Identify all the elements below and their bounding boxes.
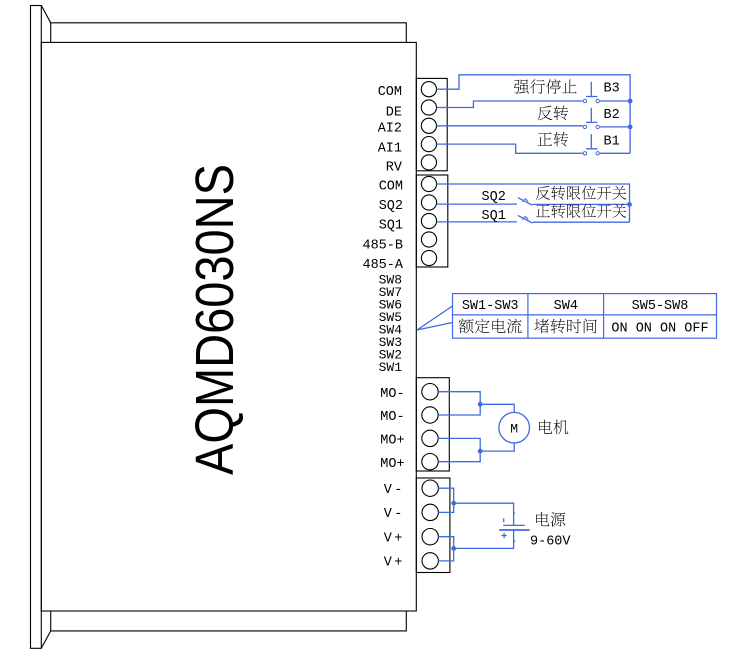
svg-text:SW1-SW3: SW1-SW3 [462,299,519,314]
svg-text:RV: RV [386,161,403,176]
svg-text:SW5-SW8: SW5-SW8 [632,299,689,314]
svg-text:V: V [384,507,393,522]
svg-text:B2: B2 [604,108,620,123]
svg-text:MO-: MO- [380,410,404,425]
svg-text:V: V [384,556,393,571]
svg-text:SQ1: SQ1 [379,219,403,234]
svg-text:485-A: 485-A [362,258,403,273]
svg-text:DE: DE [386,106,402,121]
svg-text:SW4: SW4 [554,299,578,314]
svg-text:SQ1: SQ1 [482,209,506,224]
svg-text:+: + [394,556,402,571]
svg-text:SW1: SW1 [379,360,403,375]
svg-text:MO+: MO+ [380,457,404,472]
svg-text:AI1: AI1 [378,142,402,157]
svg-text:SQ2: SQ2 [482,190,506,205]
svg-text:ON ON ON OFF: ON ON ON OFF [611,321,708,336]
svg-text:MO-: MO- [380,387,404,402]
svg-text:485-B: 485-B [362,238,403,253]
svg-text:M: M [510,421,518,436]
svg-text:B1: B1 [604,134,620,149]
svg-text:+: + [394,531,402,546]
svg-text:COM: COM [378,85,402,100]
svg-text:9-60V: 9-60V [530,534,571,549]
svg-text:B3: B3 [604,82,620,97]
svg-text:SQ2: SQ2 [379,199,403,214]
svg-text:COM: COM [379,180,403,195]
svg-text:-: - [394,483,402,498]
svg-text:AQMD6030NS: AQMD6030NS [185,164,245,475]
svg-text:-: - [394,507,402,522]
svg-text:MO+: MO+ [380,434,404,449]
svg-text:AI2: AI2 [378,122,402,137]
svg-text:V: V [384,483,393,498]
svg-text:V: V [384,531,393,546]
